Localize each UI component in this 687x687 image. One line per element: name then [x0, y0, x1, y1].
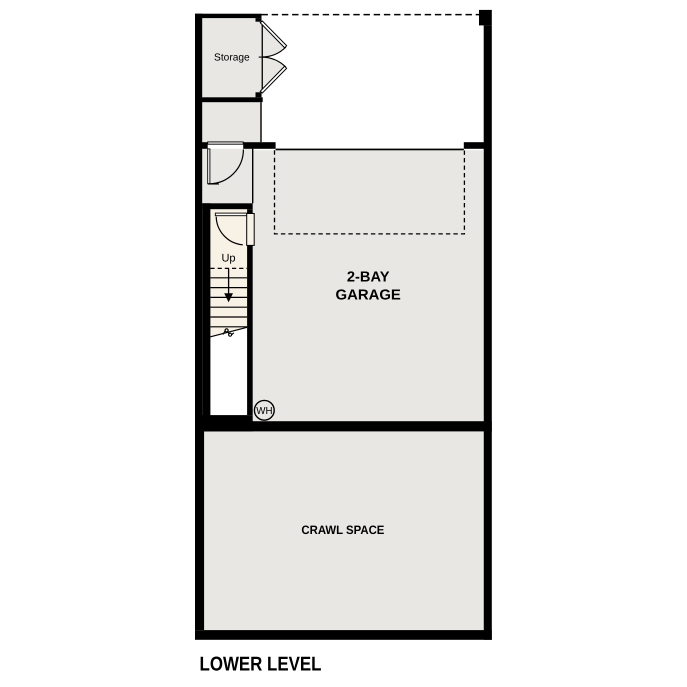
svg-text:LOWER LEVEL: LOWER LEVEL: [200, 653, 322, 675]
svg-text:CRAWL SPACE: CRAWL SPACE: [301, 523, 384, 537]
svg-text:WH: WH: [256, 406, 272, 417]
svg-text:GARAGE: GARAGE: [336, 288, 402, 304]
svg-text:Up: Up: [221, 252, 235, 264]
svg-text:2-BAY: 2-BAY: [347, 270, 390, 286]
svg-text:Storage: Storage: [214, 52, 250, 63]
